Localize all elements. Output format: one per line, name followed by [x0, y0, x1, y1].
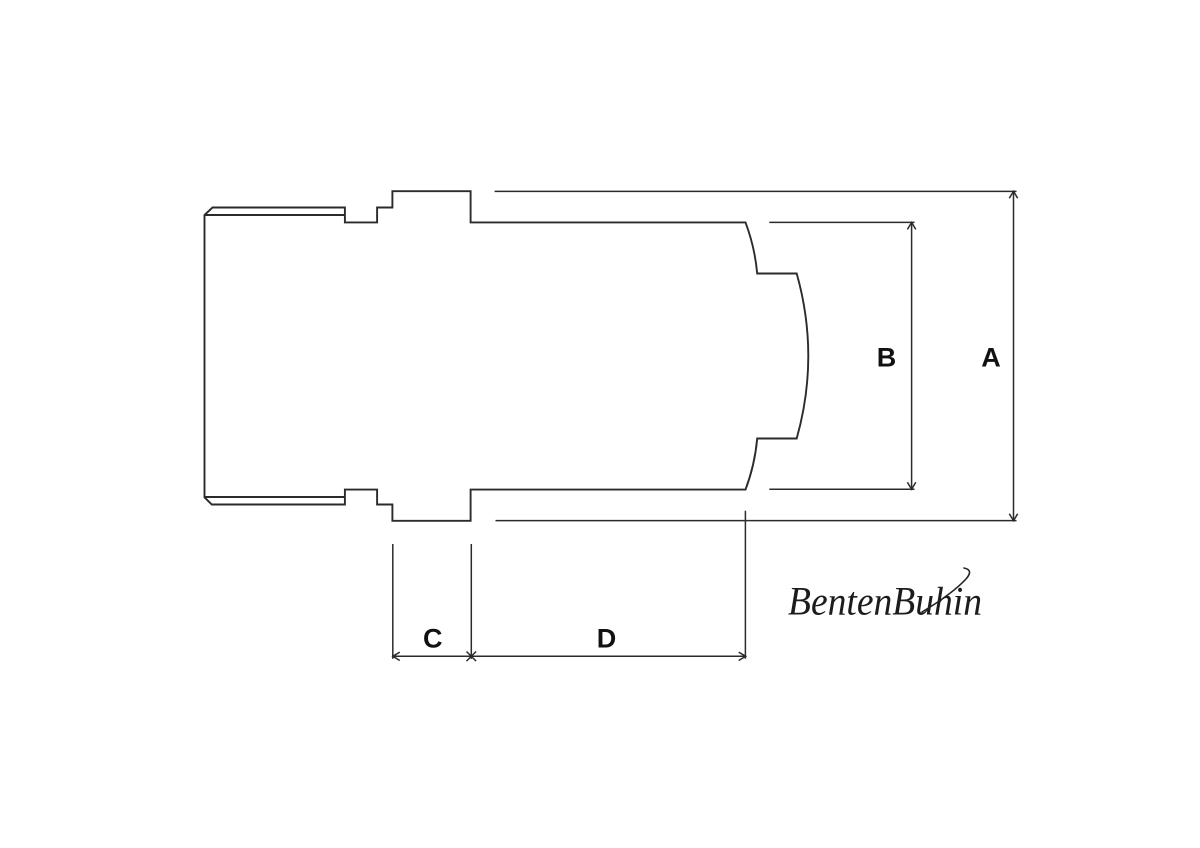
svg-text:B: B — [877, 343, 897, 373]
svg-text:C: C — [423, 624, 443, 654]
svg-text:A: A — [981, 343, 1001, 373]
svg-text:D: D — [597, 624, 617, 654]
svg-text:BentenBuhin: BentenBuhin — [788, 579, 982, 624]
